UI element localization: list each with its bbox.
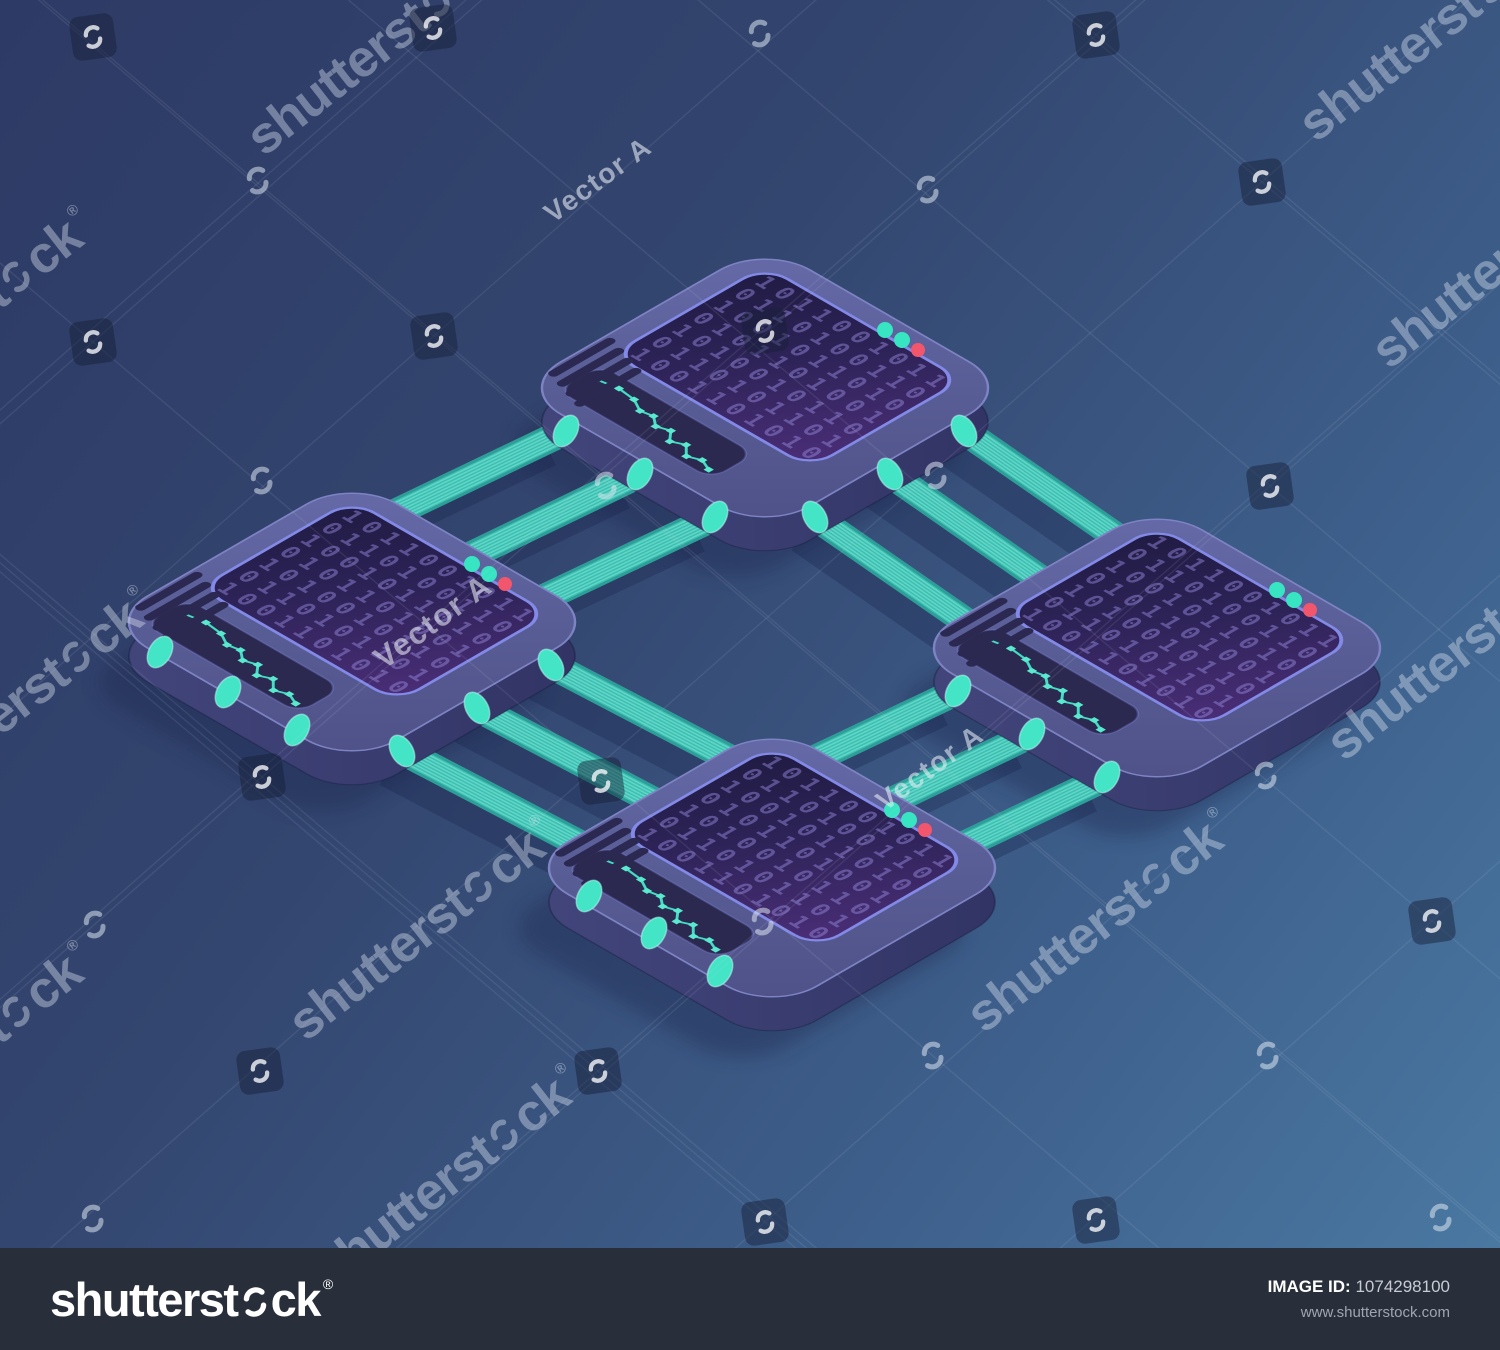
device-layer: 1011001011011010011010010110100101101001… (103, 244, 1407, 1046)
led-teal (1286, 592, 1302, 608)
led-teal (894, 332, 910, 348)
image-meta: IMAGE ID: 1074298100 www.shutterstock.co… (1268, 1277, 1450, 1321)
led-teal (464, 556, 480, 572)
led-teal (481, 566, 497, 582)
stock-image-preview-page: 1011001011011010011010010110100101101001… (0, 0, 1500, 1350)
logo-text-post: ck (271, 1272, 320, 1327)
led-red (918, 823, 932, 837)
website-url: www.shutterstock.com (1268, 1304, 1450, 1321)
footer-bar: shutterst ck ® IMAGE ID: 1074298100 www.… (0, 1248, 1500, 1350)
shutterstock-o-icon (240, 1287, 270, 1317)
logo-text-pre: shutterst (50, 1272, 238, 1327)
image-id-value: 1074298100 (1355, 1277, 1450, 1296)
led-red (911, 343, 925, 357)
shutterstock-logo: shutterst ck ® (50, 1272, 332, 1327)
led-teal (877, 322, 893, 338)
led-teal (1269, 582, 1285, 598)
image-id-label: IMAGE ID: (1268, 1277, 1351, 1296)
illustration-canvas: 1011001011011010011010010110100101101001… (0, 0, 1500, 1350)
led-red (498, 577, 512, 591)
led-red (1303, 603, 1317, 617)
led-teal (884, 802, 900, 818)
image-id-line: IMAGE ID: 1074298100 (1268, 1277, 1450, 1297)
registered-mark: ® (323, 1276, 332, 1292)
led-teal (901, 812, 917, 828)
